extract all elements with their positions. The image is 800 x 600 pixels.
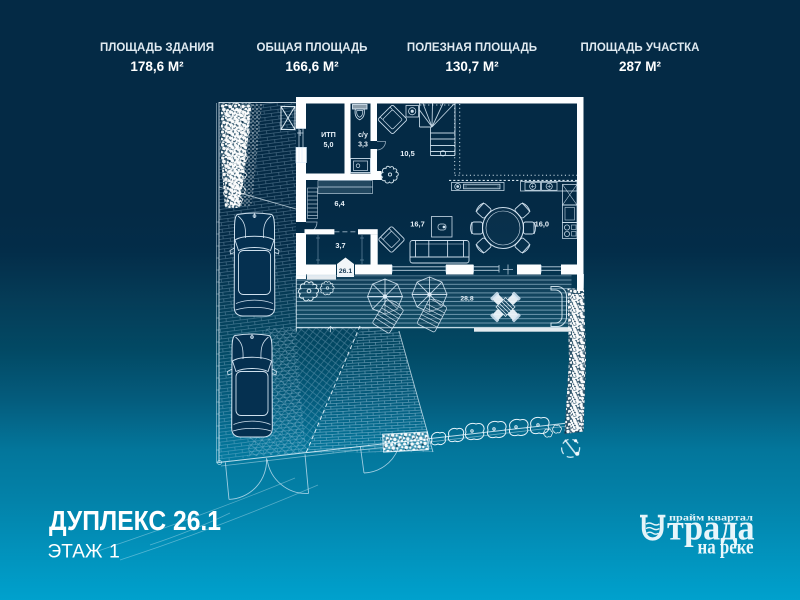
svg-text:ПОЛЕЗНАЯ ПЛОЩАДЬ: ПОЛЕЗНАЯ ПЛОЩАДЬ [407, 42, 537, 54]
svg-text:16,7: 16,7 [410, 220, 424, 229]
svg-text:ПЛОЩАДЬ ЗДАНИЯ: ПЛОЩАДЬ ЗДАНИЯ [100, 42, 214, 54]
svg-text:ПЛОЩАДЬ УЧАСТКА: ПЛОЩАДЬ УЧАСТКА [580, 42, 699, 54]
svg-text:5,0: 5,0 [324, 140, 334, 149]
svg-text:178,6 М²: 178,6 М² [130, 59, 184, 74]
svg-text:287 М²: 287 М² [619, 59, 662, 74]
svg-text:130,7 М²: 130,7 М² [445, 59, 499, 74]
svg-text:с/у: с/у [358, 132, 368, 139]
svg-text:6,4: 6,4 [334, 199, 345, 208]
svg-text:на реке: на реке [698, 535, 754, 559]
svg-text:26.1: 26.1 [339, 268, 352, 275]
svg-text:28,8: 28,8 [460, 296, 473, 303]
svg-text:3,3: 3,3 [358, 142, 368, 149]
svg-text:166,6 М²: 166,6 М² [285, 59, 339, 74]
svg-text:ОБЩАЯ ПЛОЩАДЬ: ОБЩАЯ ПЛОЩАДЬ [257, 42, 368, 54]
svg-text:ЭТАЖ: ЭТАЖ [48, 541, 103, 563]
svg-text:16,0: 16,0 [535, 220, 549, 229]
svg-text:10,5: 10,5 [400, 149, 414, 158]
svg-text:1: 1 [109, 541, 120, 563]
svg-text:ДУПЛЕКС 26.1: ДУПЛЕКС 26.1 [49, 505, 221, 536]
svg-text:ИТП: ИТП [321, 130, 336, 139]
svg-text:3,7: 3,7 [335, 241, 345, 250]
